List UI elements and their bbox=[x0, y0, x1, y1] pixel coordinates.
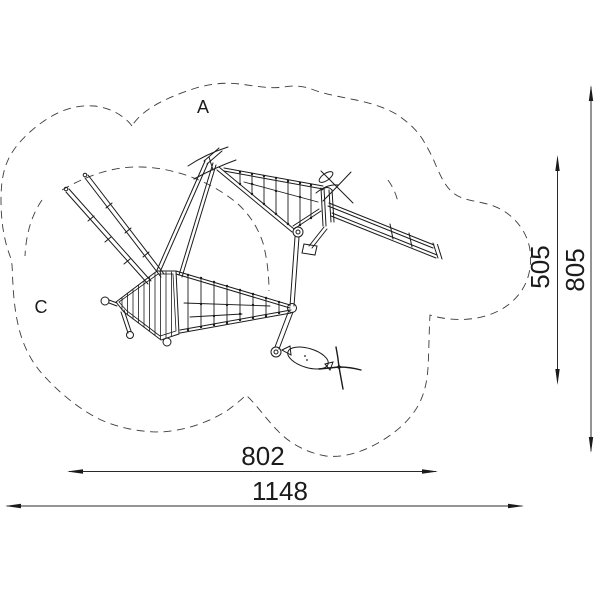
slide bbox=[321, 188, 442, 260]
equipment-deck bbox=[101, 271, 179, 346]
dim-label-505: 505 bbox=[525, 245, 555, 288]
climb-net-lower bbox=[176, 271, 291, 333]
zone-label-a: A bbox=[197, 97, 209, 117]
deck-peg-left bbox=[101, 297, 117, 306]
apex-marker bbox=[188, 147, 236, 179]
dimension-arrows bbox=[5, 85, 593, 508]
safety-zone-outline bbox=[1, 83, 531, 456]
zone-label-c: C bbox=[35, 297, 48, 317]
deck-foot bbox=[163, 338, 171, 346]
dim-label-802: 802 bbox=[241, 441, 284, 471]
safety-zone-inner-arc-left bbox=[25, 200, 42, 256]
twin-poles bbox=[64, 173, 164, 284]
equipment-structure bbox=[64, 147, 442, 389]
junction-post bbox=[288, 227, 328, 313]
spinner-seat bbox=[271, 310, 361, 389]
plan-drawing-canvas: A C bbox=[0, 0, 600, 600]
dimensions bbox=[7, 87, 591, 506]
playground-plan-drawing: A C bbox=[0, 0, 600, 600]
safety-zone-inner-arc-c bbox=[62, 167, 269, 291]
safety-zone bbox=[1, 83, 531, 456]
safety-zone-inner-arc-right bbox=[388, 180, 398, 202]
dim-label-805: 805 bbox=[560, 248, 590, 291]
dim-label-1148: 1148 bbox=[252, 476, 308, 506]
